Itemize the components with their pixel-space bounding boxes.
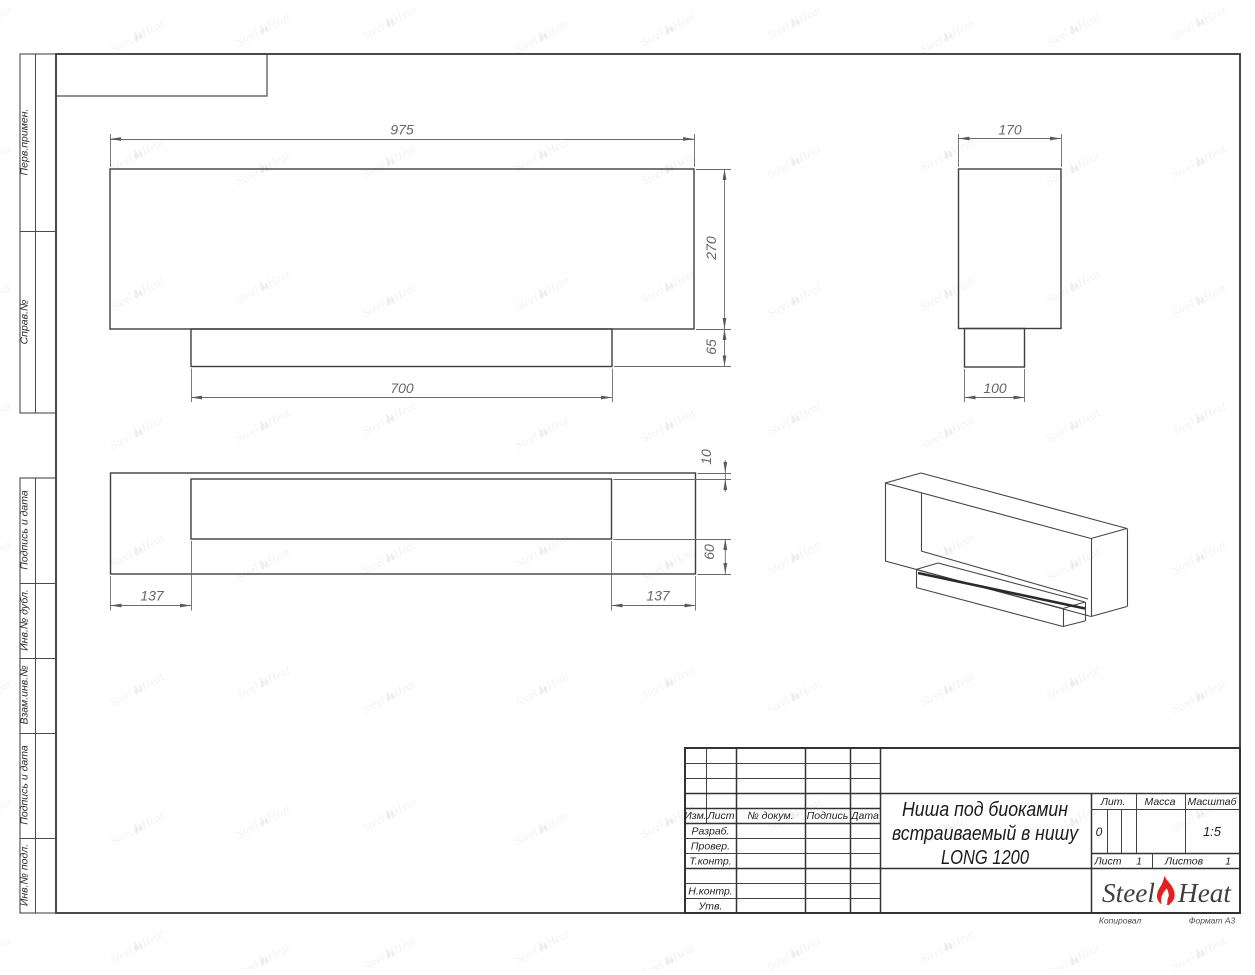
svg-text:Heat: Heat — [1177, 878, 1233, 908]
svg-text:975: 975 — [390, 122, 414, 138]
svg-text:Копировал: Копировал — [1099, 916, 1141, 926]
svg-text:Провер.: Провер. — [691, 841, 730, 853]
svg-text:Формат А3: Формат А3 — [1189, 916, 1236, 926]
svg-text:Утв.: Утв. — [698, 901, 723, 913]
svg-text:60: 60 — [701, 544, 717, 560]
svg-text:10: 10 — [698, 449, 714, 465]
svg-text:Steel: Steel — [1102, 878, 1155, 908]
svg-text:встраиваемый в нишу: встраиваемый в нишу — [892, 823, 1079, 845]
svg-text:Изм.: Изм. — [684, 810, 706, 822]
svg-text:Масштаб: Масштаб — [1187, 796, 1237, 808]
svg-text:1:5: 1:5 — [1203, 824, 1222, 839]
svg-text:137: 137 — [140, 588, 165, 604]
svg-text:Подпись и дата: Подпись и дата — [19, 490, 31, 570]
svg-text:Инв.№ подл.: Инв.№ подл. — [19, 844, 31, 906]
svg-text:Лист: Лист — [1093, 856, 1121, 868]
svg-text:Подпись: Подпись — [807, 810, 849, 822]
svg-text:Разраб.: Разраб. — [692, 826, 730, 838]
svg-text:Ниша под биокамин: Ниша под биокамин — [902, 799, 1068, 821]
svg-text:Лист: Лист — [706, 810, 734, 822]
svg-text:Подпись и дата: Подпись и дата — [19, 745, 31, 825]
svg-text:Т.контр.: Т.контр. — [689, 856, 731, 868]
svg-text:Лит.: Лит. — [1100, 796, 1126, 808]
svg-text:700: 700 — [390, 380, 414, 396]
svg-text:137: 137 — [646, 588, 671, 604]
svg-text:Листов: Листов — [1164, 856, 1204, 868]
svg-text:100: 100 — [983, 380, 1007, 396]
svg-text:Перв.примен.: Перв.примен. — [19, 109, 31, 176]
svg-text:Масса: Масса — [1144, 796, 1175, 808]
svg-text:1: 1 — [1225, 856, 1231, 868]
svg-text:Справ.№: Справ.№ — [19, 300, 31, 345]
svg-text:LONG 1200: LONG 1200 — [941, 847, 1029, 869]
svg-text:170: 170 — [998, 122, 1022, 138]
svg-text:1: 1 — [1136, 856, 1142, 868]
svg-text:0: 0 — [1096, 825, 1103, 839]
svg-text:Н.контр.: Н.контр. — [688, 886, 732, 898]
svg-text:65: 65 — [703, 339, 719, 355]
svg-text:№ докум.: № докум. — [747, 810, 793, 822]
svg-text:270: 270 — [703, 236, 719, 261]
svg-text:Инв.№ дубл.: Инв.№ дубл. — [19, 589, 31, 651]
svg-text:Дата: Дата — [850, 810, 879, 822]
svg-text:Взам.инв.№: Взам.инв.№ — [19, 665, 31, 724]
